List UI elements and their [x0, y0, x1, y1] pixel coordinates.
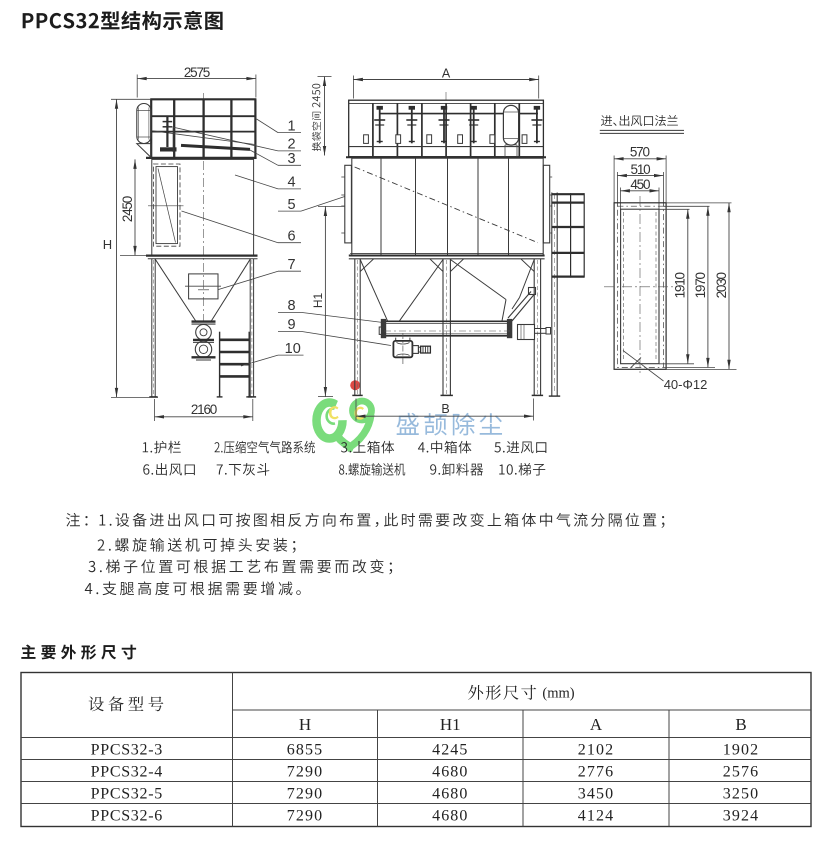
svg-text:1: 1	[287, 118, 295, 134]
svg-text:4: 4	[287, 175, 295, 191]
svg-text:3250: 3250	[723, 786, 759, 803]
svg-text:H: H	[103, 237, 112, 252]
svg-text:PPCS32-5: PPCS32-5	[91, 786, 163, 803]
svg-text:5: 5	[287, 197, 295, 213]
svg-text:H1: H1	[440, 715, 461, 734]
svg-text:PPCS32-3: PPCS32-3	[91, 742, 163, 759]
svg-text:2776: 2776	[578, 764, 614, 781]
svg-text:7: 7	[287, 257, 295, 273]
svg-text:40-Φ12: 40-Φ12	[664, 377, 708, 392]
svg-text:9: 9	[287, 317, 295, 333]
svg-text:2575: 2575	[184, 65, 210, 80]
svg-text:8: 8	[287, 298, 295, 314]
svg-text:H1: H1	[311, 293, 325, 309]
svg-text:A: A	[442, 67, 451, 81]
svg-text:B: B	[735, 715, 746, 734]
svg-text:450: 450	[630, 177, 650, 192]
svg-text:7290: 7290	[287, 764, 323, 781]
svg-text:A: A	[590, 715, 603, 734]
svg-text:1910: 1910	[673, 272, 688, 298]
svg-text:3924: 3924	[723, 808, 759, 825]
svg-text:10: 10	[285, 341, 301, 357]
svg-text:3450: 3450	[578, 786, 614, 803]
svg-text:PPCS32-4: PPCS32-4	[91, 764, 163, 781]
svg-text:4680: 4680	[432, 764, 468, 781]
svg-text:4245: 4245	[432, 742, 468, 759]
svg-text:570: 570	[630, 145, 650, 160]
svg-text:B: B	[441, 402, 449, 416]
svg-text:1970: 1970	[693, 272, 708, 298]
svg-text:3: 3	[287, 151, 295, 167]
svg-text:2102: 2102	[578, 742, 614, 759]
svg-text:(mm): (mm)	[542, 686, 574, 702]
svg-text:4124: 4124	[578, 808, 614, 825]
svg-text:7290: 7290	[287, 808, 323, 825]
svg-text:PPCS32-6: PPCS32-6	[91, 808, 163, 825]
svg-text:2450: 2450	[120, 196, 135, 222]
svg-text:H: H	[299, 715, 311, 734]
svg-text:4680: 4680	[432, 786, 468, 803]
svg-text:4680: 4680	[432, 808, 468, 825]
svg-text:7290: 7290	[287, 786, 323, 803]
svg-text:2030: 2030	[714, 272, 729, 298]
svg-text:6: 6	[287, 229, 295, 245]
svg-text:2160: 2160	[191, 402, 217, 417]
svg-text:510: 510	[631, 162, 651, 177]
svg-text:6855: 6855	[287, 742, 323, 759]
svg-text:1902: 1902	[723, 742, 759, 759]
svg-text:2576: 2576	[723, 764, 759, 781]
